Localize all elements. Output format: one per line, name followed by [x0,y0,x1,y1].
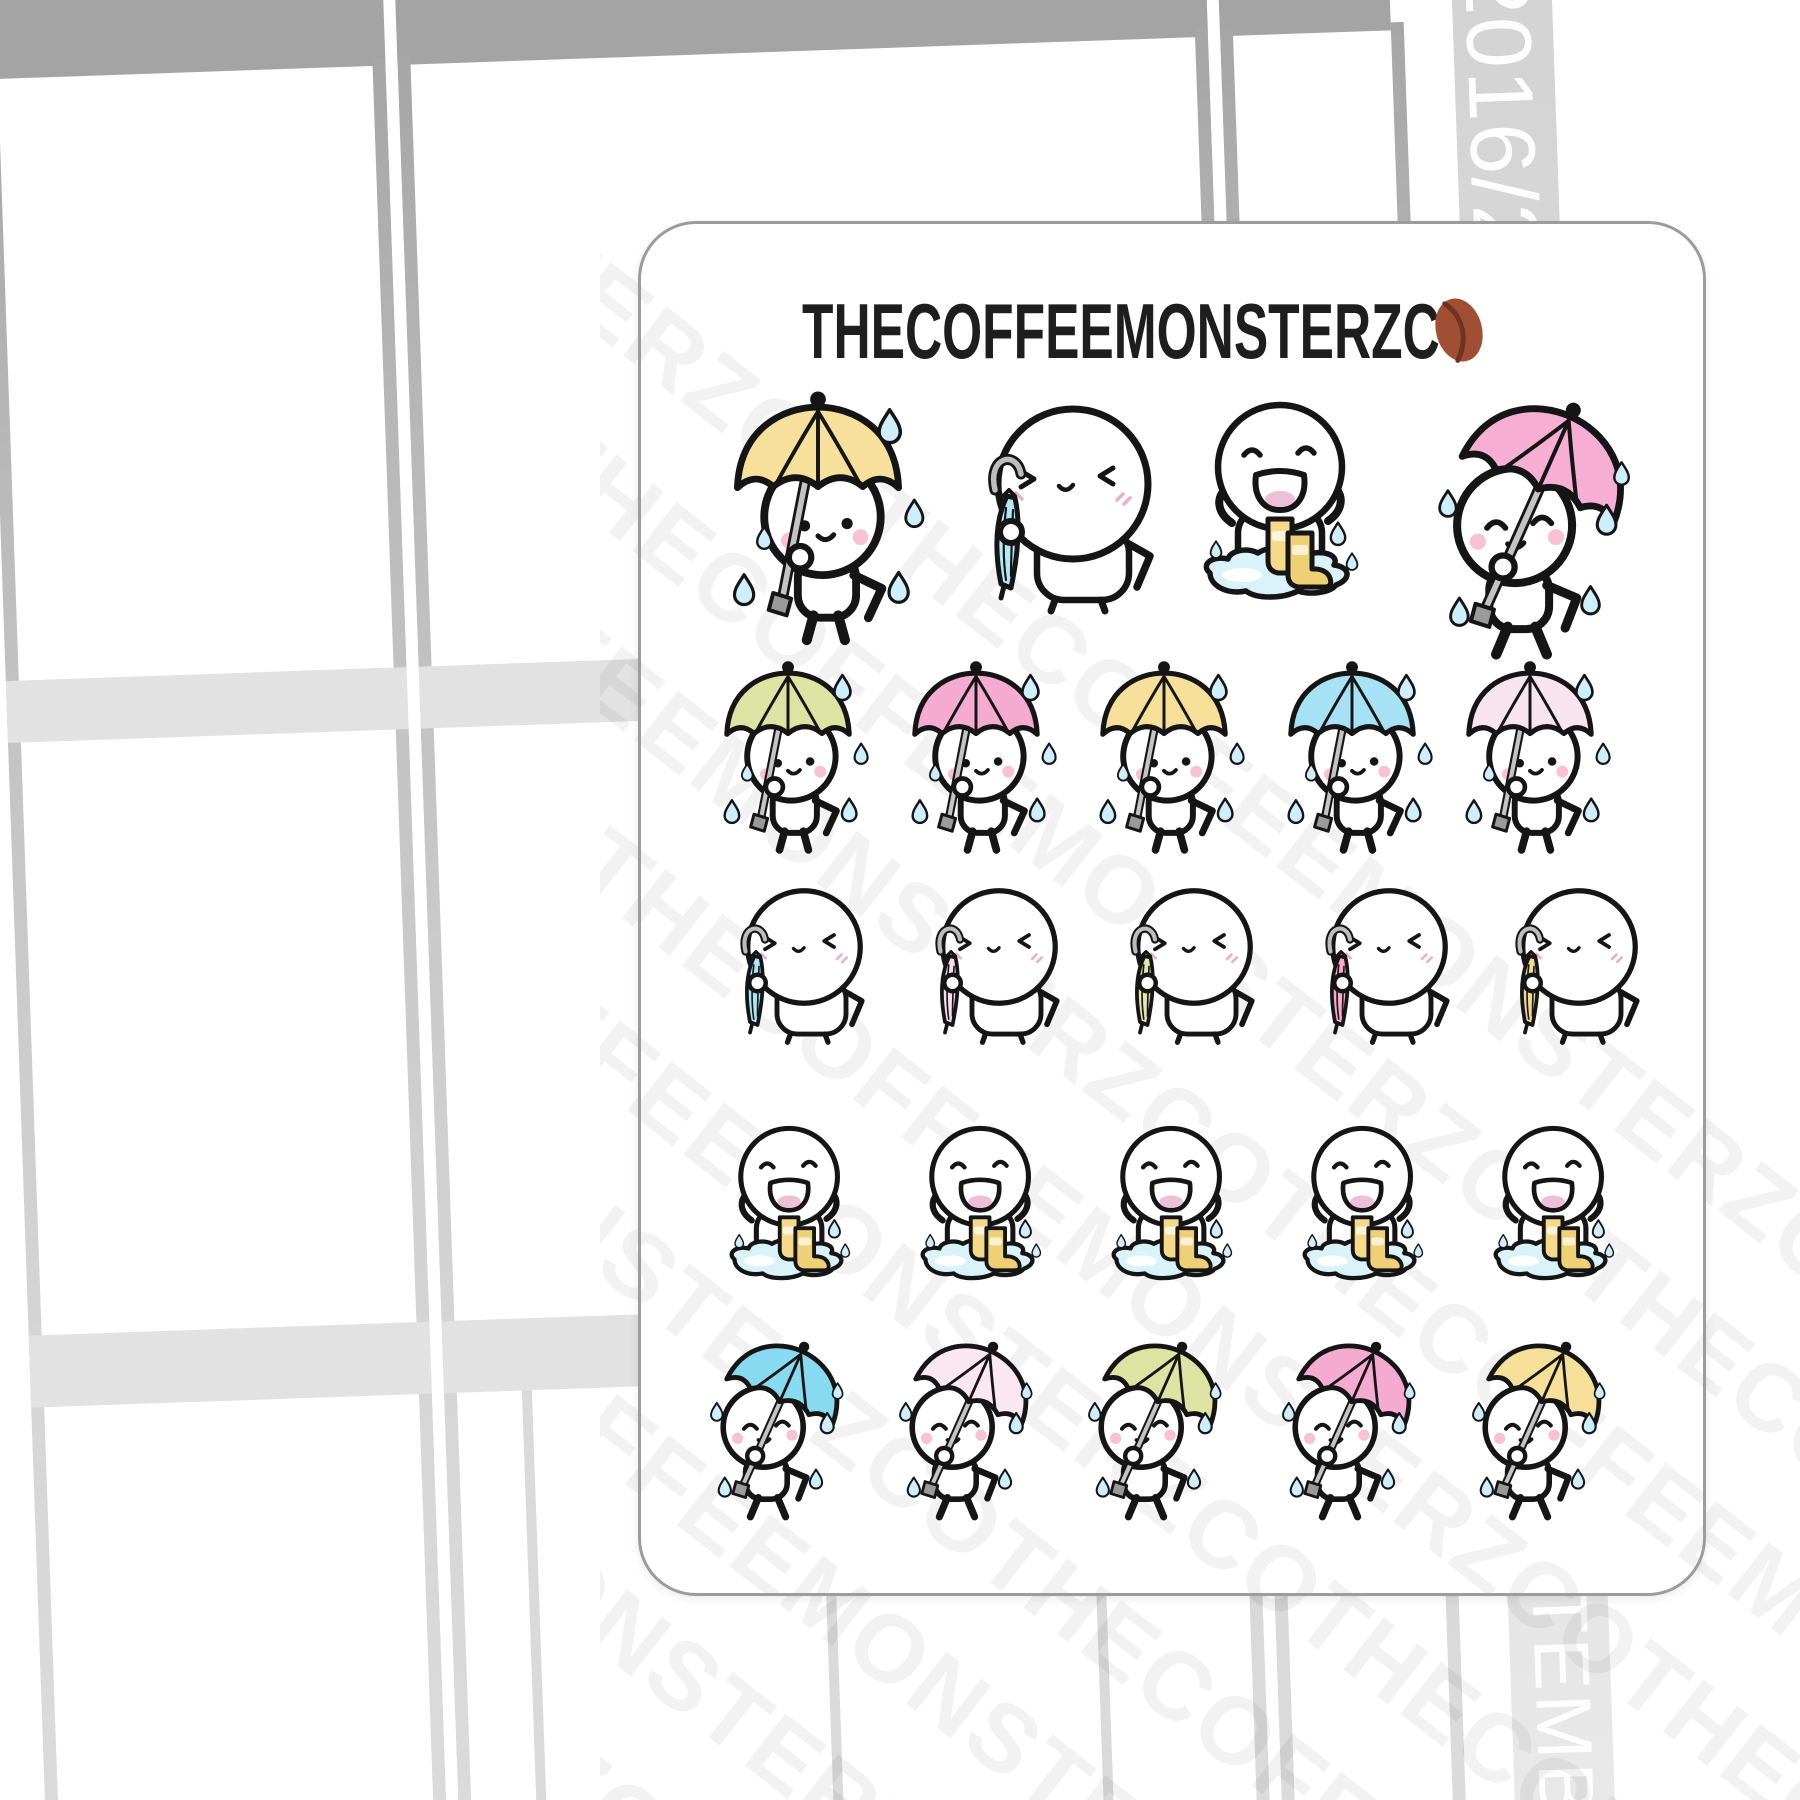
sticker-closed-umbrella-yellow [1489,881,1647,1039]
sticker-umbrella-rain-green [703,651,873,855]
sticker-umbrella-rain-pink-large [1418,383,1648,659]
planner-header-bar [0,0,1391,83]
sticker-puddle-rainboots-2 [899,1119,1063,1283]
sticker-umbrella-rain-blue [1267,651,1437,855]
sticker-closed-umbrella-palepink [909,881,1067,1039]
sticker-umbrella-tilt-green [1074,1328,1234,1520]
sticker-umbrella-tilt-yellow [1458,1328,1618,1520]
sticker-puddle-rainboots-5 [1472,1119,1636,1283]
sticker-puddle-rainboots-1 [708,1119,872,1283]
sticker-umbrella-rain-yellow [1079,651,1249,855]
sticker-closed-umbrella-blue-large [953,396,1163,606]
sticker-umbrella-rain-palepink [1445,651,1615,855]
sticker-umbrella-rain-pink [891,651,1061,855]
sticker-umbrella-rain-yellow-large [706,378,930,647]
product-photo-canvas: 2016/2017 SEPTEMBER THECOFFEEMONSTERZCOT… [0,0,1800,1800]
sticker-closed-umbrella-green [1104,881,1262,1039]
sticker-umbrella-tilt-pink [1268,1328,1428,1520]
sticker-puddle-rainboots-4 [1281,1119,1445,1283]
sticker-puddle-rainboots-3 [1090,1119,1254,1283]
sticker-closed-umbrella-blue [714,881,872,1039]
sticker-closed-umbrella-pink [1299,881,1457,1039]
sticker-puddle-rainboots-large [1176,393,1386,603]
planner-notes-divider [522,1390,550,1800]
sticker-umbrella-tilt-blue [696,1328,856,1520]
planner-column-divider [0,71,62,1800]
sticker-umbrella-tilt-palepink [885,1328,1045,1520]
brand-logo-text: THECOFFEEMONSTERZCO [802,286,1330,377]
sticker-sheet: THECOFFEEMONSTERZCOTHECOFFEEMONSTERZCOTH… [638,221,1706,1596]
